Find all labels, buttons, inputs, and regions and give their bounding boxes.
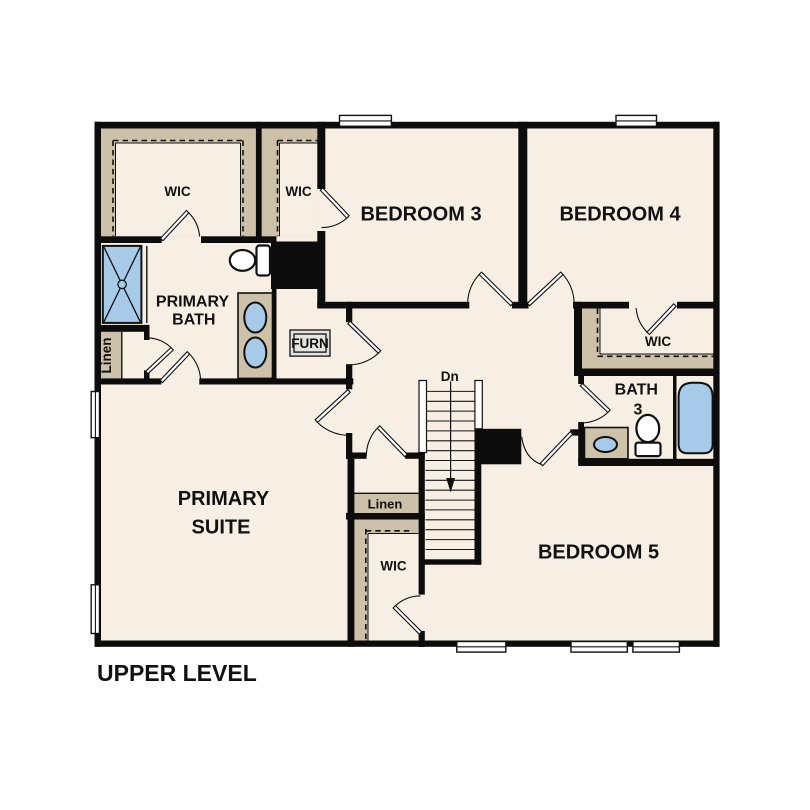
svg-text:UPPER LEVEL: UPPER LEVEL [97,660,257,686]
svg-text:BATH: BATH [172,312,215,329]
svg-text:BEDROOM 4: BEDROOM 4 [559,203,681,225]
svg-text:WIC: WIC [380,558,406,573]
svg-text:Linen: Linen [368,496,403,511]
svg-text:3: 3 [634,402,643,419]
svg-text:FURN: FURN [291,336,329,351]
svg-text:WIC: WIC [164,184,190,199]
svg-text:BEDROOM 3: BEDROOM 3 [360,203,481,225]
svg-text:PRIMARY: PRIMARY [156,294,230,311]
svg-text:SUITE: SUITE [192,516,251,538]
svg-text:BATH: BATH [615,382,658,399]
svg-text:Dn: Dn [441,369,459,384]
svg-text:BEDROOM 5: BEDROOM 5 [538,542,659,564]
svg-text:WIC: WIC [285,184,311,199]
svg-text:Linen: Linen [99,338,114,374]
svg-text:WIC: WIC [645,334,671,349]
svg-text:PRIMARY: PRIMARY [178,488,270,510]
